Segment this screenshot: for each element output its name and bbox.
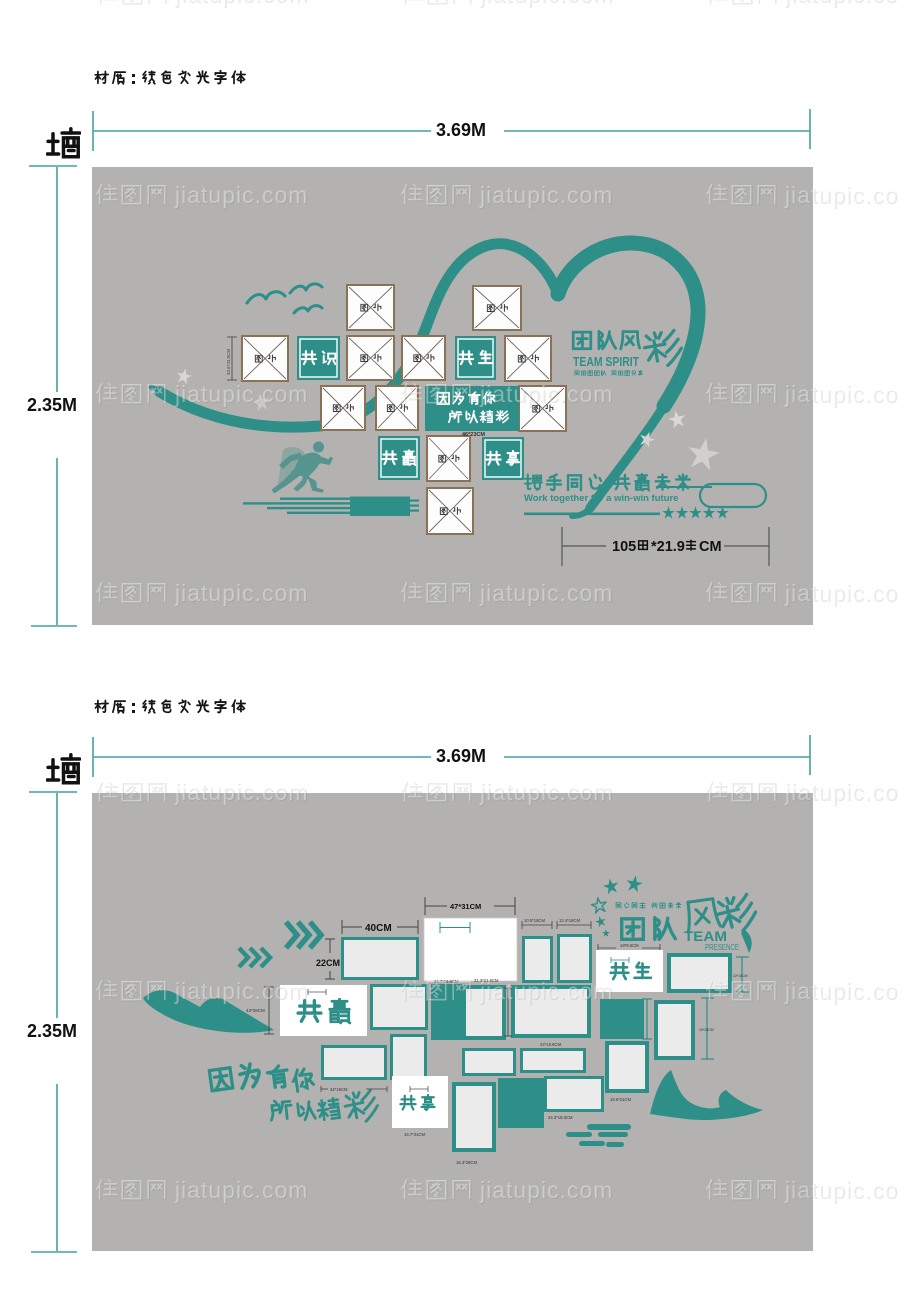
svg-text:105: 105 <box>612 539 636 555</box>
svg-text:10.5*16CM: 10.5*16CM <box>524 918 545 923</box>
svg-text:33.6*33.6CM: 33.6*33.6CM <box>226 349 231 376</box>
svg-text:2.35M: 2.35M <box>27 395 77 415</box>
svg-text:22CM: 22CM <box>316 958 340 968</box>
svg-text:18.6*21CM: 18.6*21CM <box>610 1097 631 1102</box>
svg-text:12.4*16CM: 12.4*16CM <box>559 918 580 923</box>
svg-text:15*28CM: 15*28CM <box>699 1028 714 1032</box>
svg-text:43*26CM: 43*26CM <box>246 1008 265 1013</box>
svg-text:18*8.6CM: 18*8.6CM <box>620 943 639 948</box>
svg-text:40CM: 40CM <box>365 923 392 934</box>
svg-text:3.69M: 3.69M <box>436 746 486 766</box>
svg-text:Work together for a win-win fu: Work together for a win-win future <box>524 493 678 504</box>
svg-text:CM: CM <box>699 539 722 555</box>
svg-text:19.7*31CM: 19.7*31CM <box>404 1132 425 1137</box>
svg-text:2.35M: 2.35M <box>27 1021 77 1041</box>
svg-text:3.69M: 3.69M <box>436 120 486 140</box>
svg-text:46*23CM: 46*23CM <box>462 432 485 438</box>
svg-text:15.3*28CM: 15.3*28CM <box>456 1160 477 1165</box>
svg-text:24.3*18.6CM: 24.3*18.6CM <box>548 1115 573 1120</box>
svg-text:47*31CM: 47*31CM <box>450 902 481 911</box>
svg-text:24*16.6CM: 24*16.6CM <box>540 1042 561 1047</box>
svg-text:34*18CM: 34*18CM <box>330 1087 348 1092</box>
svg-text:*21.9: *21.9 <box>651 539 685 555</box>
svg-text:PRESENCE: PRESENCE <box>705 942 739 952</box>
svg-text:TEAM SPIRIT: TEAM SPIRIT <box>573 355 639 369</box>
svg-text:22*16CM: 22*16CM <box>733 974 748 978</box>
